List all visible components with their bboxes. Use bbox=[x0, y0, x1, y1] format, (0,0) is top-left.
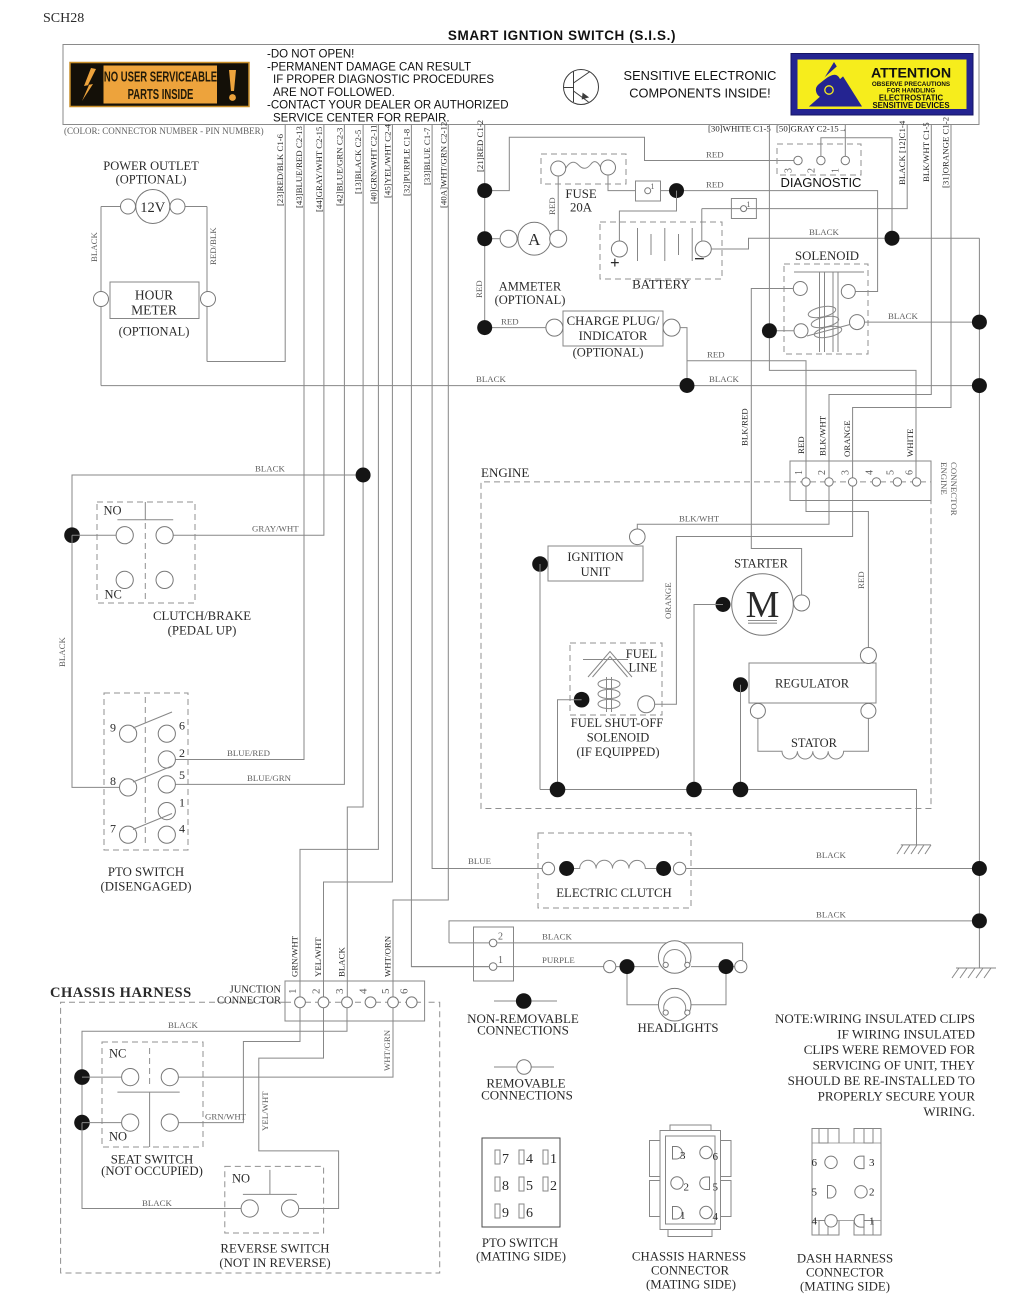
svg-text:RED: RED bbox=[856, 571, 866, 589]
svg-text:[42]BLUE/GRN C2-3: [42]BLUE/GRN C2-3 bbox=[335, 127, 345, 206]
svg-text:4: 4 bbox=[812, 1216, 818, 1228]
svg-text:A: A bbox=[528, 230, 541, 249]
svg-text:CONNECTIONS: CONNECTIONS bbox=[477, 1023, 569, 1038]
svg-text:ENGINE: ENGINE bbox=[939, 462, 949, 495]
svg-text:CONNECTOR: CONNECTOR bbox=[217, 996, 281, 1007]
svg-text:GRN/WHT: GRN/WHT bbox=[205, 1112, 247, 1122]
svg-text:UNIT: UNIT bbox=[581, 565, 611, 579]
svg-text:[44]GRAY/WHT C2-15: [44]GRAY/WHT C2-15 bbox=[314, 126, 324, 212]
svg-text:1: 1 bbox=[287, 989, 299, 995]
svg-text:BLUE/RED: BLUE/RED bbox=[227, 748, 270, 758]
svg-text:2: 2 bbox=[311, 989, 323, 995]
svg-text:NO: NO bbox=[232, 1172, 250, 1186]
svg-text:(MATING SIDE): (MATING SIDE) bbox=[476, 1250, 566, 1264]
svg-text:BLACK: BLACK bbox=[255, 464, 285, 474]
svg-text:(DISENGAGED): (DISENGAGED) bbox=[101, 880, 192, 894]
svg-text:FUEL: FUEL bbox=[626, 647, 657, 661]
svg-text:POWER OUTLET: POWER OUTLET bbox=[103, 159, 199, 173]
svg-text:6: 6 bbox=[713, 1151, 719, 1163]
svg-text:[30]WHITE C1-5: [30]WHITE C1-5 bbox=[708, 124, 771, 134]
svg-text:DASH HARNESS: DASH HARNESS bbox=[797, 1252, 893, 1266]
svg-text:YEL/WHT: YEL/WHT bbox=[313, 937, 323, 977]
svg-text:2: 2 bbox=[179, 746, 185, 760]
svg-text:[21]RED C1-2: [21]RED C1-2 bbox=[475, 120, 485, 172]
svg-text:7: 7 bbox=[502, 1152, 509, 1167]
svg-text:BLACK: BLACK bbox=[809, 227, 839, 237]
svg-text:BLACK [12]C1-4: BLACK [12]C1-4 bbox=[897, 120, 907, 185]
svg-text:INDICATOR: INDICATOR bbox=[579, 329, 648, 343]
svg-text:(MATING SIDE): (MATING SIDE) bbox=[646, 1278, 736, 1292]
svg-text:PTO SWITCH: PTO SWITCH bbox=[108, 865, 184, 879]
svg-text:2: 2 bbox=[550, 1179, 557, 1194]
svg-text:RED: RED bbox=[706, 180, 724, 190]
svg-text:ENGINE: ENGINE bbox=[481, 465, 529, 480]
svg-text:6: 6 bbox=[399, 988, 411, 994]
svg-text:3: 3 bbox=[334, 988, 346, 994]
svg-text:LINE: LINE bbox=[629, 661, 658, 675]
svg-text:[43]BLUE/RED C2-13: [43]BLUE/RED C2-13 bbox=[294, 126, 304, 208]
svg-text:ELECTRIC CLUTCH: ELECTRIC CLUTCH bbox=[556, 886, 672, 900]
svg-text:SOLENOID: SOLENOID bbox=[795, 249, 859, 263]
svg-text:BLACK: BLACK bbox=[476, 374, 506, 384]
svg-text:5: 5 bbox=[526, 1179, 533, 1194]
svg-text:[23]RED/BLK C1-6: [23]RED/BLK C1-6 bbox=[275, 133, 285, 206]
svg-text:(MATING SIDE): (MATING SIDE) bbox=[800, 1280, 890, 1294]
svg-text:STARTER: STARTER bbox=[734, 557, 788, 571]
svg-text:FUSE: FUSE bbox=[565, 187, 596, 201]
svg-text:1: 1 bbox=[794, 470, 805, 475]
svg-text:CLIPS WERE REMOVED FOR: CLIPS WERE REMOVED FOR bbox=[804, 1042, 976, 1057]
svg-text:-DO NOT OPEN!: -DO NOT OPEN! bbox=[267, 49, 354, 61]
svg-text:(OPTIONAL): (OPTIONAL) bbox=[495, 293, 566, 307]
svg-text:6: 6 bbox=[812, 1157, 818, 1169]
svg-text:WHT/ORN: WHT/ORN bbox=[383, 935, 393, 977]
svg-text:PROPERLY SECURE YOUR: PROPERLY SECURE YOUR bbox=[818, 1089, 976, 1104]
svg-text:SERVICING OF UNIT, THEY: SERVICING OF UNIT, THEY bbox=[813, 1058, 976, 1073]
svg-text:DIAGNOSTIC: DIAGNOSTIC bbox=[781, 175, 862, 190]
svg-text:12V: 12V bbox=[140, 200, 166, 216]
svg-text:ORANGE: ORANGE bbox=[663, 582, 673, 619]
svg-text:BLUE: BLUE bbox=[468, 856, 491, 866]
svg-text:WHITE: WHITE bbox=[905, 429, 915, 457]
svg-text:BLACK: BLACK bbox=[709, 374, 739, 384]
svg-text:REVERSE SWITCH: REVERSE SWITCH bbox=[220, 1242, 329, 1256]
svg-text:NOTE:WIRING INSULATED CLIPS: NOTE:WIRING INSULATED CLIPS bbox=[775, 1011, 975, 1026]
svg-text:PURPLE: PURPLE bbox=[542, 955, 575, 965]
svg-text:4: 4 bbox=[526, 1152, 533, 1167]
svg-text:1: 1 bbox=[179, 796, 185, 810]
svg-text:PTO SWITCH: PTO SWITCH bbox=[482, 1236, 558, 1250]
svg-text:[45]YEL/WHT C2-4: [45]YEL/WHT C2-4 bbox=[383, 124, 393, 198]
svg-text:9: 9 bbox=[502, 1206, 509, 1221]
svg-text:BLK/WHT: BLK/WHT bbox=[679, 514, 720, 524]
svg-text:SOLENOID: SOLENOID bbox=[587, 731, 650, 745]
svg-text:WIRING.: WIRING. bbox=[923, 1104, 975, 1119]
svg-text:BLACK: BLACK bbox=[816, 910, 846, 920]
svg-text:3: 3 bbox=[841, 470, 852, 475]
svg-text:CONNECTOR: CONNECTOR bbox=[806, 1266, 884, 1280]
svg-text:9: 9 bbox=[110, 721, 116, 735]
svg-text:SCH28: SCH28 bbox=[43, 11, 84, 26]
svg-text:-PERMANENT DAMAGE CAN RESULT: -PERMANENT DAMAGE CAN RESULT bbox=[267, 61, 471, 73]
svg-text:ARE NOT FOLLOWED.: ARE NOT FOLLOWED. bbox=[273, 87, 395, 99]
svg-text:IF PROPER DIAGNOSTIC PROCEDURE: IF PROPER DIAGNOSTIC PROCEDURES bbox=[273, 74, 494, 86]
svg-text:4: 4 bbox=[358, 988, 370, 994]
svg-text:4: 4 bbox=[179, 822, 185, 836]
svg-text:[32]PURPLE C1-8: [32]PURPLE C1-8 bbox=[402, 128, 412, 196]
svg-text:SENSITIVE ELECTRONIC: SENSITIVE ELECTRONIC bbox=[624, 68, 777, 83]
svg-text:YEL/WHT: YEL/WHT bbox=[260, 1091, 270, 1131]
svg-text:3: 3 bbox=[869, 1157, 875, 1169]
svg-text:BLACK: BLACK bbox=[542, 932, 572, 942]
svg-text:COMPONENTS INSIDE!: COMPONENTS INSIDE! bbox=[629, 86, 771, 101]
svg-text:BLACK: BLACK bbox=[142, 1198, 172, 1208]
svg-text:6: 6 bbox=[526, 1206, 533, 1221]
svg-text:RED: RED bbox=[796, 436, 806, 454]
svg-text:1: 1 bbox=[869, 1216, 875, 1228]
svg-text:RED: RED bbox=[501, 317, 519, 327]
svg-text:SERVICE CENTER FOR REPAIR.: SERVICE CENTER FOR REPAIR. bbox=[273, 113, 450, 125]
svg-text:RED: RED bbox=[707, 350, 725, 360]
svg-text:−: − bbox=[694, 249, 705, 270]
svg-text:(NOT OCCUPIED): (NOT OCCUPIED) bbox=[101, 1164, 203, 1178]
svg-text:AMMETER: AMMETER bbox=[499, 280, 562, 294]
svg-text:BLK/WHT: BLK/WHT bbox=[818, 415, 828, 456]
svg-text:(OPTIONAL): (OPTIONAL) bbox=[116, 173, 187, 187]
svg-text:FUEL SHUT-OFF: FUEL SHUT-OFF bbox=[571, 716, 664, 730]
svg-text:HOUR: HOUR bbox=[135, 288, 173, 303]
svg-text:RED: RED bbox=[547, 197, 557, 215]
svg-text:BLACK: BLACK bbox=[337, 947, 347, 977]
svg-text:5: 5 bbox=[812, 1187, 818, 1199]
svg-text:CHASSIS HARNESS: CHASSIS HARNESS bbox=[50, 985, 192, 1001]
svg-text:NO: NO bbox=[104, 504, 122, 518]
svg-text:[31]ORANGE C1-2: [31]ORANGE C1-2 bbox=[941, 117, 951, 188]
svg-text:20A: 20A bbox=[570, 201, 593, 215]
svg-text:1: 1 bbox=[680, 1210, 686, 1222]
svg-text:(PEDAL UP): (PEDAL UP) bbox=[168, 624, 237, 638]
svg-text:[13]BLACK C2-5: [13]BLACK C2-5 bbox=[353, 129, 363, 194]
svg-text:M: M bbox=[746, 584, 780, 626]
svg-text:6: 6 bbox=[179, 719, 185, 733]
svg-text:2: 2 bbox=[807, 168, 818, 173]
svg-text:BLACK: BLACK bbox=[57, 637, 67, 667]
svg-text:(IF EQUIPPED): (IF EQUIPPED) bbox=[577, 745, 660, 759]
svg-text:2: 2 bbox=[817, 470, 828, 475]
svg-text:NC: NC bbox=[105, 588, 122, 602]
svg-text:IF WIRING INSULATED: IF WIRING INSULATED bbox=[837, 1027, 975, 1042]
svg-text:CONNECTOR: CONNECTOR bbox=[949, 462, 959, 516]
svg-text:BLUE/GRN: BLUE/GRN bbox=[247, 773, 292, 783]
svg-text:8: 8 bbox=[502, 1179, 509, 1194]
svg-text:[40A]WHT/GRN C2-12: [40A]WHT/GRN C2-12 bbox=[439, 122, 449, 208]
svg-text:(NOT IN REVERSE): (NOT IN REVERSE) bbox=[219, 1256, 330, 1270]
svg-text:BLK/RED: BLK/RED bbox=[740, 408, 750, 446]
svg-text:CONNECTIONS: CONNECTIONS bbox=[481, 1088, 573, 1103]
svg-text:JUNCTION: JUNCTION bbox=[230, 985, 282, 996]
svg-text:STATOR: STATOR bbox=[791, 736, 838, 750]
svg-text:RED: RED bbox=[474, 280, 484, 298]
svg-text:1: 1 bbox=[498, 955, 503, 966]
svg-text:3: 3 bbox=[784, 168, 795, 173]
svg-text:2: 2 bbox=[684, 1182, 690, 1194]
svg-text:CHARGE PLUG/: CHARGE PLUG/ bbox=[567, 314, 660, 328]
svg-text:BATTERY: BATTERY bbox=[632, 277, 690, 292]
svg-text:1: 1 bbox=[550, 1152, 557, 1167]
svg-text:4: 4 bbox=[864, 470, 875, 475]
svg-text:BLACK: BLACK bbox=[89, 232, 99, 262]
svg-text:SENSITIVE DEVICES: SENSITIVE DEVICES bbox=[872, 101, 949, 110]
svg-text:BLK/WHT C1-5: BLK/WHT C1-5 bbox=[921, 122, 931, 182]
svg-text:HEADLIGHTS: HEADLIGHTS bbox=[637, 1021, 718, 1035]
svg-text:IGNITION: IGNITION bbox=[567, 550, 623, 564]
svg-text:GRN/WHT: GRN/WHT bbox=[290, 935, 300, 977]
svg-text:BLACK: BLACK bbox=[888, 311, 918, 321]
svg-text:RED/BLK: RED/BLK bbox=[208, 227, 218, 265]
svg-text:NO USER SERVICEABLE: NO USER SERVICEABLE bbox=[104, 68, 217, 85]
svg-text:4: 4 bbox=[713, 1211, 719, 1223]
svg-text:5: 5 bbox=[713, 1182, 719, 1194]
svg-text:CONNECTOR: CONNECTOR bbox=[651, 1264, 729, 1278]
svg-text:ATTENTION: ATTENTION bbox=[871, 66, 951, 82]
svg-text:(OPTIONAL): (OPTIONAL) bbox=[119, 325, 190, 339]
svg-text:6: 6 bbox=[905, 470, 916, 475]
svg-text:(OPTIONAL): (OPTIONAL) bbox=[573, 346, 644, 360]
svg-text:NC: NC bbox=[109, 1047, 126, 1061]
svg-text:-CONTACT YOUR DEALER OR AUTHOR: -CONTACT YOUR DEALER OR AUTHORIZED bbox=[267, 100, 509, 112]
svg-text:1: 1 bbox=[831, 168, 842, 173]
svg-text:+: + bbox=[610, 253, 620, 272]
svg-text:WHT/GRN: WHT/GRN bbox=[382, 1029, 392, 1071]
svg-text:GRAY/WHT: GRAY/WHT bbox=[252, 524, 299, 534]
svg-text:RED: RED bbox=[706, 150, 724, 160]
svg-text:1: 1 bbox=[651, 182, 655, 191]
svg-text:(COLOR: CONNECTOR NUMBER - PIN: (COLOR: CONNECTOR NUMBER - PIN NUMBER) bbox=[64, 126, 264, 136]
svg-text:2: 2 bbox=[498, 932, 503, 943]
svg-text:SHOULD BE RE-INSTALLED TO: SHOULD BE RE-INSTALLED TO bbox=[788, 1073, 975, 1088]
svg-text:PARTS INSIDE: PARTS INSIDE bbox=[128, 86, 194, 103]
svg-text:3: 3 bbox=[680, 1150, 686, 1162]
svg-text:[33]BLUE C1-7: [33]BLUE C1-7 bbox=[422, 127, 432, 185]
svg-text:1: 1 bbox=[747, 200, 751, 209]
svg-text:2: 2 bbox=[869, 1187, 875, 1199]
svg-text:7: 7 bbox=[110, 822, 116, 836]
svg-text:NO: NO bbox=[109, 1130, 127, 1144]
svg-text:REGULATOR: REGULATOR bbox=[775, 677, 850, 691]
svg-text:ORANGE: ORANGE bbox=[842, 420, 852, 457]
svg-text:BLACK: BLACK bbox=[816, 850, 846, 860]
svg-text:5: 5 bbox=[179, 768, 185, 782]
svg-text:[40]GRN/WHT C2-11: [40]GRN/WHT C2-11 bbox=[369, 125, 379, 204]
svg-text:CLUTCH/BRAKE: CLUTCH/BRAKE bbox=[153, 609, 251, 623]
svg-text:5: 5 bbox=[885, 470, 896, 475]
svg-text:5: 5 bbox=[380, 988, 392, 994]
svg-text:METER: METER bbox=[131, 303, 177, 318]
svg-text:BLACK: BLACK bbox=[168, 1020, 198, 1030]
svg-text:CHASSIS HARNESS: CHASSIS HARNESS bbox=[632, 1250, 746, 1264]
svg-text:SMART IGNTION SWITCH (S.I.S.): SMART IGNTION SWITCH (S.I.S.) bbox=[448, 28, 676, 43]
svg-text:8: 8 bbox=[110, 774, 116, 788]
svg-text:[50]GRAY C2-15→: [50]GRAY C2-15→ bbox=[776, 124, 847, 134]
